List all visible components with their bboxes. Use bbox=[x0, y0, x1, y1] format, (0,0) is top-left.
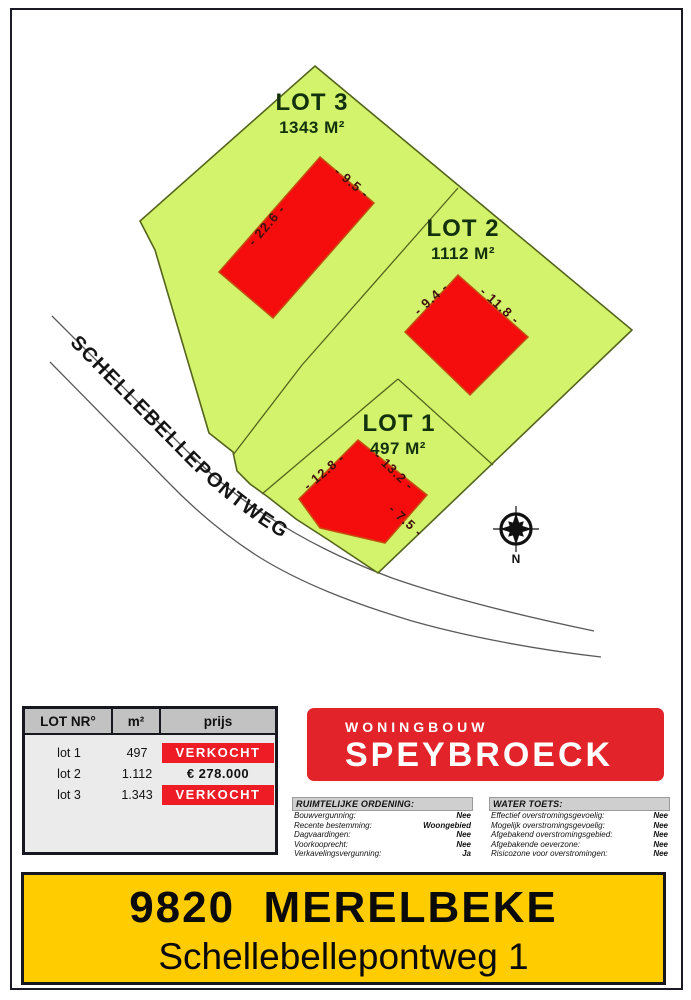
banner-city: 9820 MERELBEKE bbox=[24, 883, 663, 933]
lot3-area: 1343 M² bbox=[279, 118, 345, 137]
m2-cell: 1.343 bbox=[113, 788, 161, 802]
price-cell: VERKOCHT bbox=[162, 785, 274, 805]
lot-cell: lot 2 bbox=[25, 767, 113, 781]
lot-cell: lot 3 bbox=[25, 788, 113, 802]
price-cell: € 278.000 bbox=[162, 764, 274, 784]
panel-title: WATER TOETS: bbox=[489, 797, 670, 811]
panel-ruimtelijke-ordening: RUIMTELIJKE ORDENING: Bouwvergunning:Nee… bbox=[292, 797, 473, 859]
logo-subtitle: WONINGBOUW bbox=[345, 719, 664, 735]
panel-row: Dagvaardingen:Nee bbox=[292, 830, 473, 840]
col-header-price: prijs bbox=[161, 709, 275, 733]
lot2-title: LOT 2 bbox=[426, 215, 499, 242]
table-row: lot 1 497 VERKOCHT bbox=[25, 742, 275, 763]
compass-rose-icon bbox=[493, 506, 539, 552]
panel-row: Bouwvergunning:Nee bbox=[292, 811, 473, 821]
table-row: lot 2 1.112 € 278.000 bbox=[25, 763, 275, 784]
flyer-page: SCHELLEBELLEPONTWEG LOT 3 1343 M² LOT 2 … bbox=[0, 0, 691, 1000]
price-cell: VERKOCHT bbox=[162, 743, 274, 763]
lot3-title: LOT 3 bbox=[275, 89, 348, 116]
price-table: LOT NR° m² prijs lot 1 497 VERKOCHT lot … bbox=[22, 706, 278, 855]
price-table-body: lot 1 497 VERKOCHT lot 2 1.112 € 278.000… bbox=[25, 735, 275, 805]
table-row: lot 3 1.343 VERKOCHT bbox=[25, 784, 275, 805]
price-table-header: LOT NR° m² prijs bbox=[25, 709, 275, 735]
panel-row: Voorkooprecht:Nee bbox=[292, 840, 473, 850]
m2-cell: 497 bbox=[113, 746, 161, 760]
panel-water-toets: WATER TOETS: Effectief overstromingsgevo… bbox=[489, 797, 670, 859]
panel-row: Risicozone voor overstromingen:Nee bbox=[489, 849, 670, 859]
banner-street: Schellebellepontweg 1 bbox=[24, 936, 663, 978]
panel-title: RUIMTELIJKE ORDENING: bbox=[292, 797, 473, 811]
panel-row: Effectief overstromingsgevoelig:Nee bbox=[489, 811, 670, 821]
company-logo: WONINGBOUW SPEYBROECK bbox=[307, 708, 664, 781]
panel-row: Verkavelingsvergunning:Ja bbox=[292, 849, 473, 859]
compass-north-label: N bbox=[512, 552, 521, 566]
col-header-lot: LOT NR° bbox=[25, 709, 113, 733]
lot-cell: lot 1 bbox=[25, 746, 113, 760]
m2-cell: 1.112 bbox=[113, 767, 161, 781]
panel-row: Afgebakend overstromingsgebied:Nee bbox=[489, 830, 670, 840]
panel-row: Mogelijk overstromingsgevoelig:Nee bbox=[489, 821, 670, 831]
col-header-m2: m² bbox=[113, 709, 161, 733]
panel-row: Afgebakende oeverzone:Nee bbox=[489, 840, 670, 850]
address-banner: 9820 MERELBEKE Schellebellepontweg 1 bbox=[21, 872, 666, 985]
lot1-title: LOT 1 bbox=[362, 410, 435, 437]
lot2-area: 1112 M² bbox=[431, 244, 495, 263]
panel-row: Recente bestemming:Woongebied bbox=[292, 821, 473, 831]
logo-title: SPEYBROECK bbox=[345, 736, 664, 775]
site-plan-map: SCHELLEBELLEPONTWEG LOT 3 1343 M² LOT 2 … bbox=[10, 8, 683, 698]
